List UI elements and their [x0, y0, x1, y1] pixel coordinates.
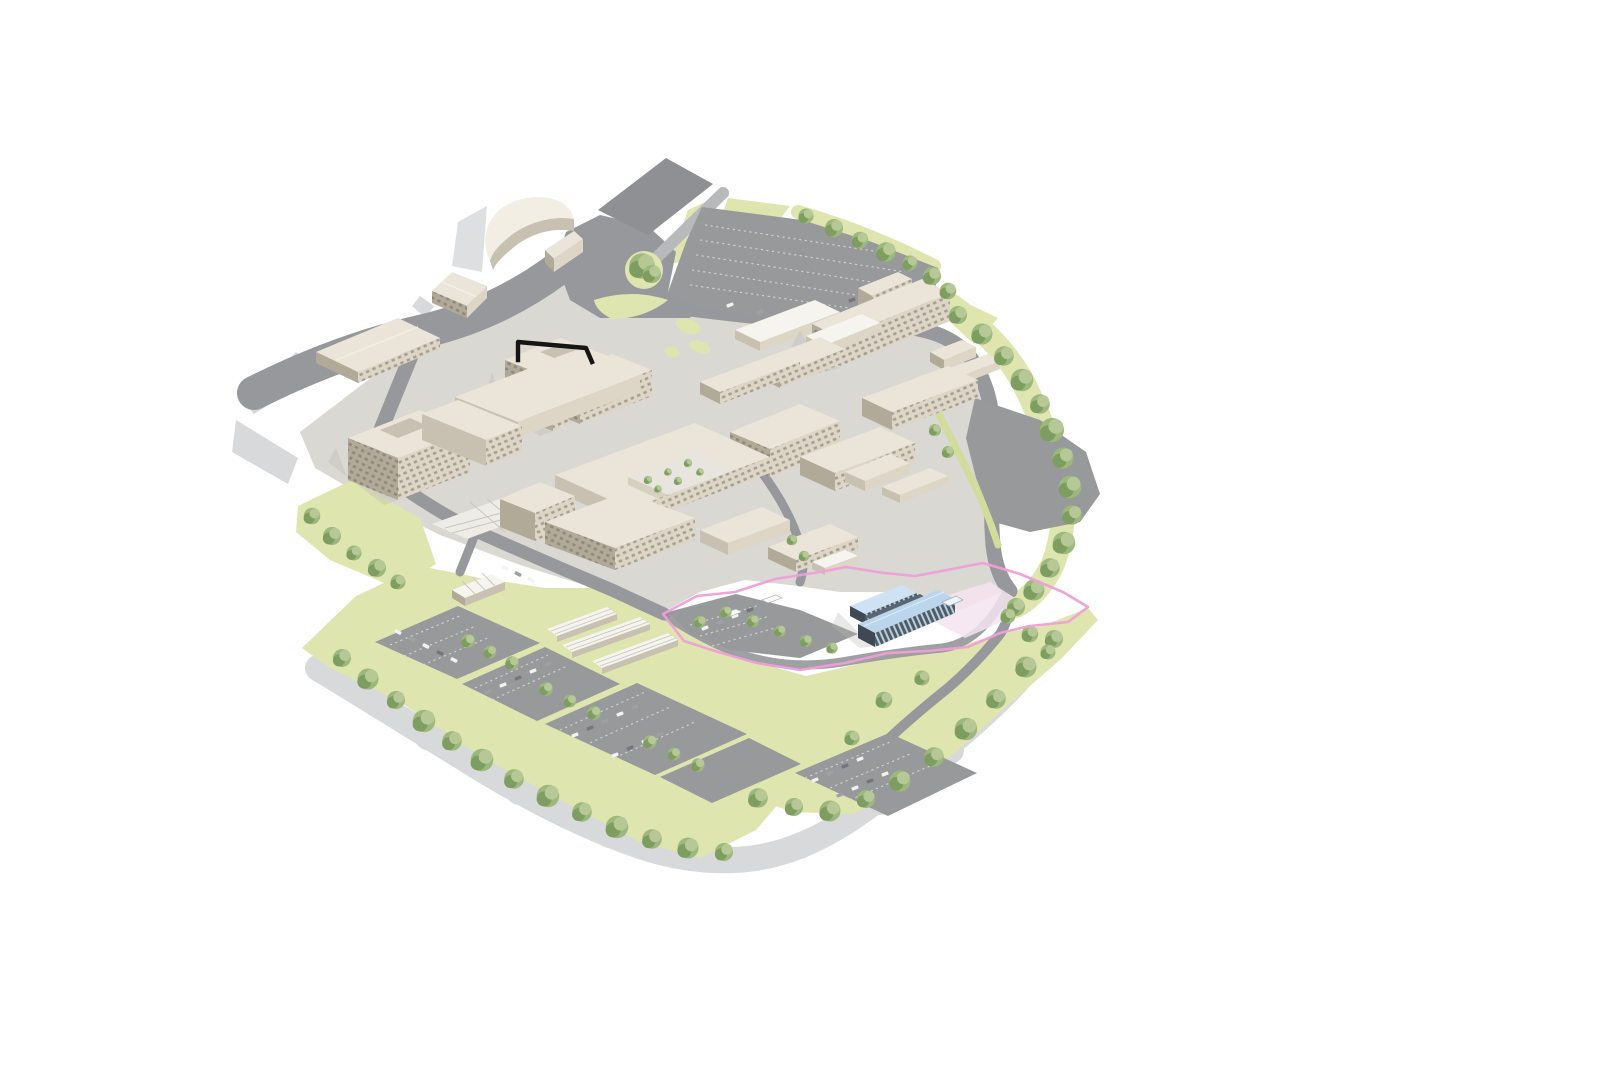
site-plan-viewport — [0, 0, 1600, 1066]
proposed-building — [832, 585, 963, 648]
site-plan-canvas — [0, 0, 1600, 1066]
